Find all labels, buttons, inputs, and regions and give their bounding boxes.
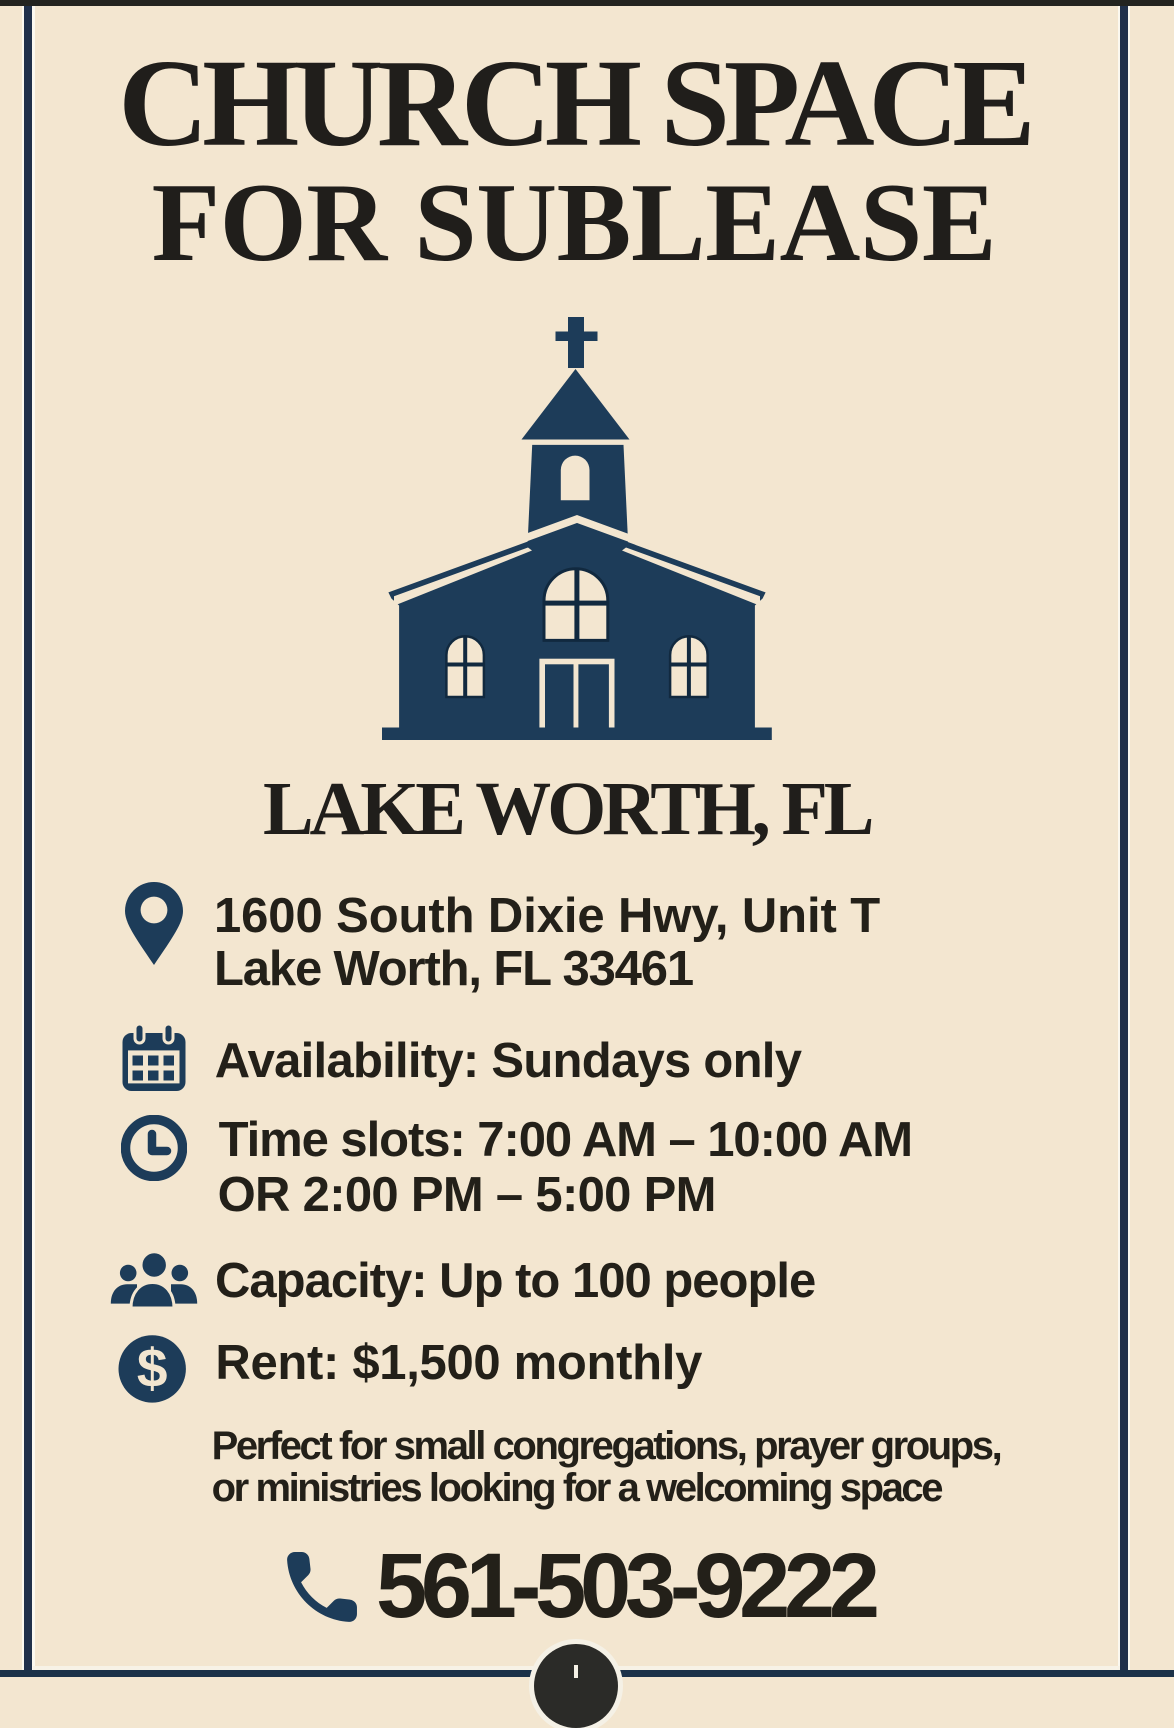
- svg-text:$: $: [137, 1337, 168, 1399]
